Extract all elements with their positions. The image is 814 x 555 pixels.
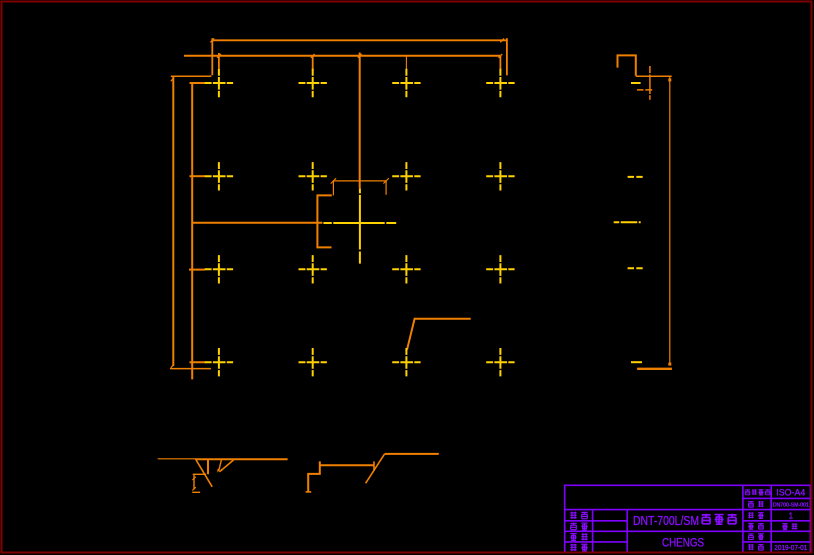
svg-text:DNT-700L/SM: DNT-700L/SM	[633, 514, 699, 528]
svg-text:CHENGS: CHENGS	[662, 536, 704, 550]
svg-text:DN700-SM-001: DN700-SM-001	[773, 502, 809, 508]
svg-text:ISO-A4: ISO-A4	[776, 488, 805, 498]
svg-text:2019-07-01: 2019-07-01	[774, 545, 807, 552]
svg-text:1: 1	[789, 512, 794, 521]
